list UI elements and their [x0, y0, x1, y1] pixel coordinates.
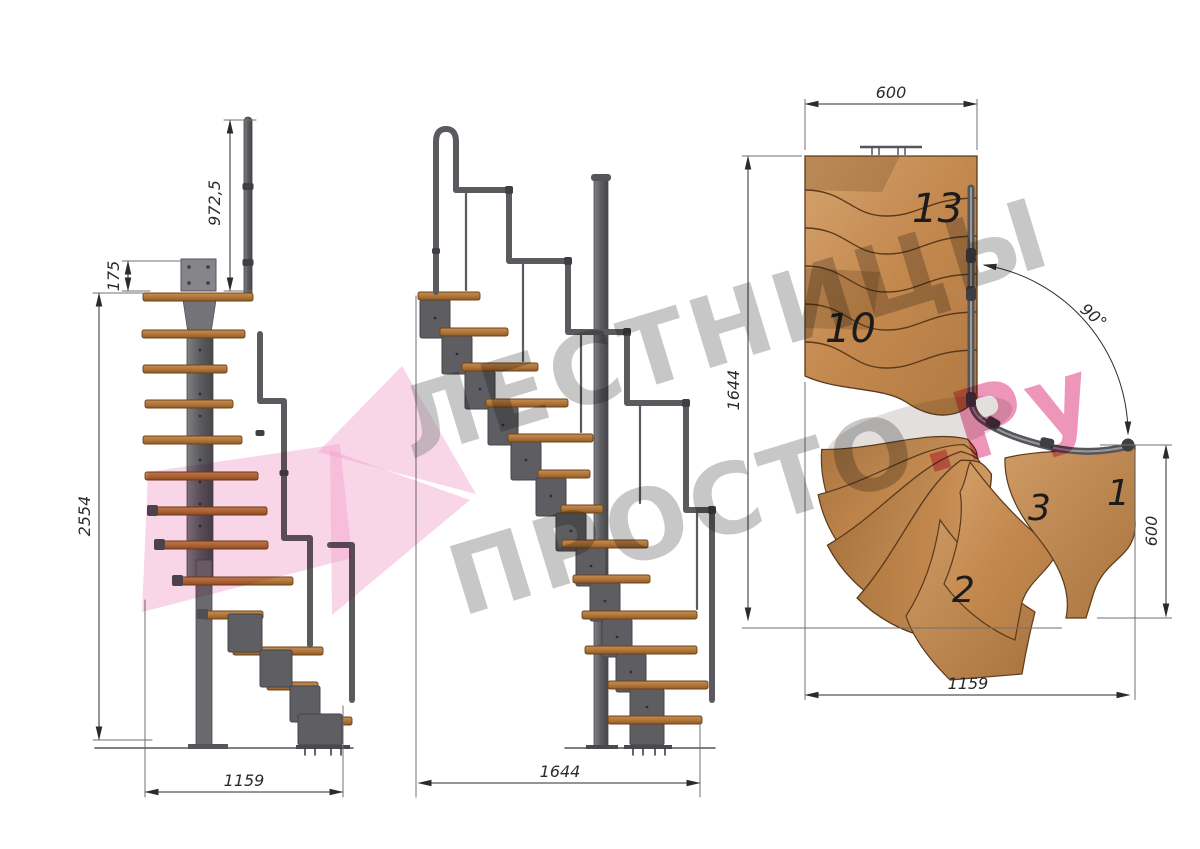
dim-total-height: 2554 [75, 496, 94, 537]
dim-plan-bottom: 1159 [948, 674, 989, 693]
handrail-post [244, 117, 252, 299]
dim-handrail-height: 972,5 [205, 180, 224, 226]
step-label-1: 1 [1107, 473, 1130, 514]
anchor-bolts [305, 749, 341, 755]
staircase-drawing: 972,5 175 2554 1159 [0, 0, 1200, 849]
dim-turn-angle: 90° [1077, 299, 1111, 332]
central-pole [594, 178, 608, 746]
plan-wall-bracket [860, 147, 922, 155]
anchor-bolts [633, 749, 665, 755]
top-mounting-plate [181, 259, 216, 291]
module-base-plate [296, 745, 350, 749]
step-modules [228, 614, 342, 745]
step-label-2: 2 [952, 570, 975, 611]
step-label-3: 3 [1028, 488, 1051, 529]
dim-plan-right: 600 [1142, 516, 1161, 547]
dim-front-base-width: 1644 [540, 762, 581, 781]
dim-plan-top: 600 [876, 83, 907, 102]
technical-drawing-canvas: 972,5 175 2554 1159 [0, 0, 1200, 849]
dim-side-base-width: 1159 [224, 771, 265, 790]
dim-plate-height: 175 [104, 261, 123, 292]
pole-base-plate [188, 744, 228, 749]
